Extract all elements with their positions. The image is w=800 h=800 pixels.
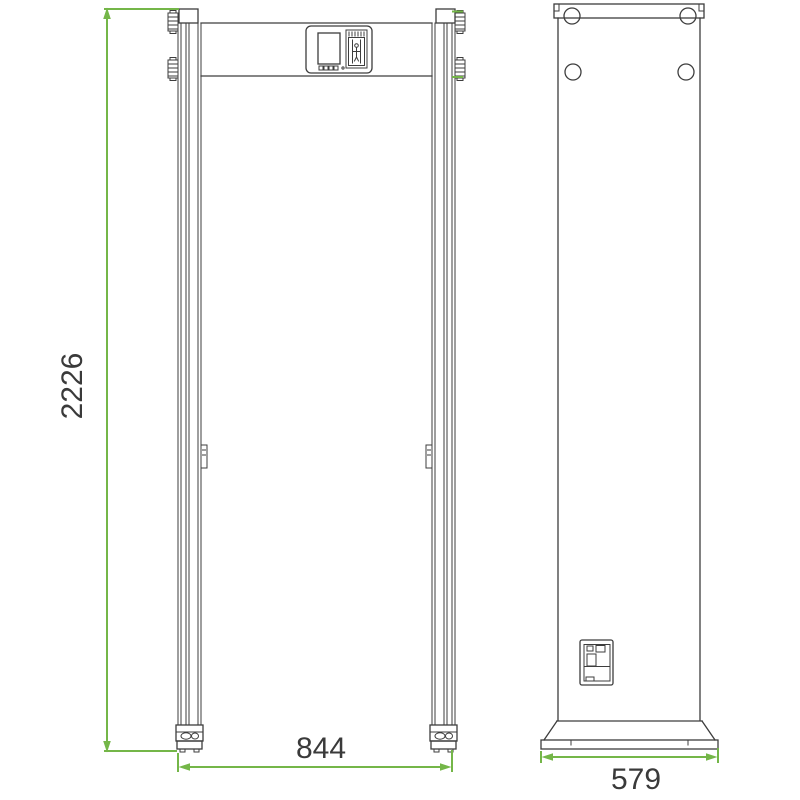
front-left-foot <box>176 725 203 752</box>
width-dimension: 844 <box>178 732 452 772</box>
width-dimension-label: 844 <box>296 732 346 765</box>
left-pillar-top-cap <box>179 9 198 23</box>
bracket-frame <box>455 60 465 78</box>
side-base <box>541 721 718 749</box>
hinge-plate <box>426 445 432 468</box>
person-icon-head <box>355 44 359 48</box>
caster-wheel <box>181 733 191 739</box>
mounting-hole <box>564 8 580 24</box>
mounting-hole <box>678 64 694 80</box>
foot-base <box>431 741 456 749</box>
right-pillar-body-lines <box>432 23 455 725</box>
caster-wheel <box>192 733 199 739</box>
bracket-tab <box>170 11 176 14</box>
front-right-foot <box>430 725 457 752</box>
indicator-ticks <box>349 32 364 36</box>
panel-button <box>319 66 323 70</box>
zone-indicator-module <box>346 30 367 68</box>
crossbar-lines <box>201 23 432 76</box>
bracket-ribs <box>168 64 178 76</box>
hinge-marks <box>203 450 206 455</box>
bracket-ribs <box>455 64 465 76</box>
drawing-canvas: 2226 844 579 <box>0 0 800 800</box>
left-pillar-mid-hinge <box>201 445 207 468</box>
base-skirt <box>544 721 715 740</box>
bracket-frame <box>168 13 178 31</box>
side-body-outline <box>557 18 702 721</box>
hinge-marks <box>428 450 431 455</box>
arrow-left <box>179 763 191 771</box>
bracket-tab <box>170 78 176 81</box>
left-pillar-lower-bracket <box>168 58 178 81</box>
socket-switch <box>587 646 593 651</box>
top-bar-corner <box>699 4 704 11</box>
base-plate <box>541 740 718 749</box>
left-pillar-upper-bracket <box>168 11 178 34</box>
bracket-ribs <box>168 17 178 29</box>
front-view <box>168 9 465 752</box>
arrow-right <box>706 753 718 761</box>
panel-button <box>324 66 328 70</box>
display-screen <box>318 33 340 64</box>
foot-pad <box>194 749 199 752</box>
socket-fuse <box>596 646 605 653</box>
person-icon <box>354 44 360 61</box>
top-bar-corner <box>554 4 559 11</box>
bracket-frame <box>455 13 465 31</box>
bracket-tab <box>170 31 176 34</box>
bracket-frame <box>168 60 178 78</box>
bracket-tab <box>457 78 463 81</box>
mounting-hole <box>680 8 696 24</box>
arrow-left <box>542 753 554 761</box>
hinge-plate <box>201 445 207 468</box>
bracket-tab <box>457 58 463 61</box>
socket-label <box>586 677 594 681</box>
height-dimension: 2226 <box>56 8 179 753</box>
person-icon-body <box>354 48 360 62</box>
bracket-tab <box>457 31 463 34</box>
caster-wheel <box>435 733 445 739</box>
foot-pad <box>434 749 439 752</box>
control-buttons <box>319 66 338 70</box>
right-pillar-mid-hinge <box>426 445 432 468</box>
metal-detector-technical-drawing: 2226 844 579 <box>0 0 800 800</box>
height-dimension-label: 2226 <box>56 353 89 420</box>
power-socket-box <box>580 640 613 685</box>
arrow-right <box>440 763 452 771</box>
depth-dimension-label: 579 <box>611 763 661 796</box>
right-pillar-upper-bracket <box>455 11 465 34</box>
socket-inner-frame <box>584 645 610 682</box>
indicator-led <box>342 67 344 69</box>
caster-wheel <box>446 733 453 739</box>
panel-button <box>334 66 338 70</box>
left-pillar-body-lines <box>178 23 201 725</box>
depth-dimension: 579 <box>541 748 718 796</box>
foot-base <box>177 741 202 749</box>
side-view <box>541 4 718 749</box>
bracket-ribs <box>455 17 465 29</box>
base-plate-marks <box>571 741 688 745</box>
mounting-hole <box>565 64 581 80</box>
crossbar <box>201 23 432 76</box>
panel-button <box>329 66 333 70</box>
mounting-holes <box>564 8 696 80</box>
socket-outlet <box>587 654 596 666</box>
bracket-tab <box>170 58 176 61</box>
control-panel <box>306 26 372 73</box>
front-right-pillar <box>426 9 465 725</box>
front-left-pillar <box>168 9 207 725</box>
foot-pad <box>180 749 185 752</box>
side-body <box>557 18 702 721</box>
